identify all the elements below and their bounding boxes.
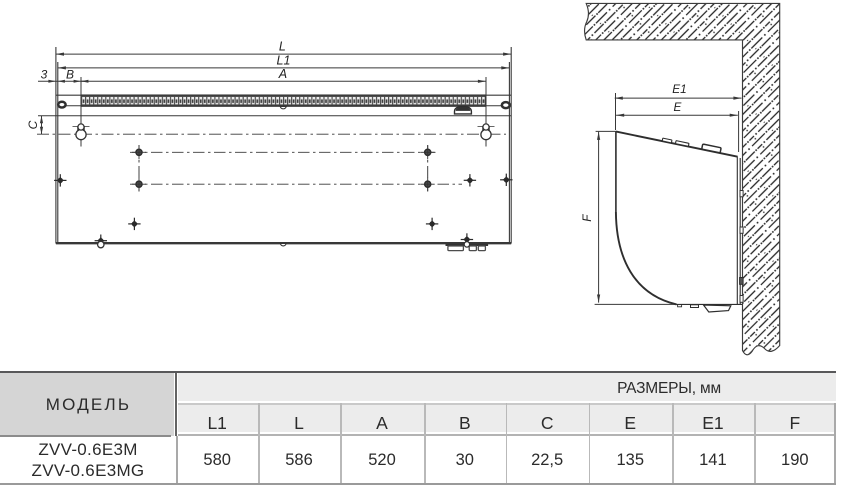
svg-text:A: A (278, 67, 287, 81)
svg-text:E1: E1 (672, 82, 686, 96)
svg-text:B: B (66, 67, 74, 81)
svg-text:F: F (580, 214, 594, 222)
svg-text:C: C (26, 120, 40, 129)
svg-text:L: L (279, 40, 286, 54)
svg-text:3: 3 (41, 67, 48, 81)
svg-text:L1: L1 (277, 53, 291, 67)
svg-text:E: E (673, 100, 681, 114)
